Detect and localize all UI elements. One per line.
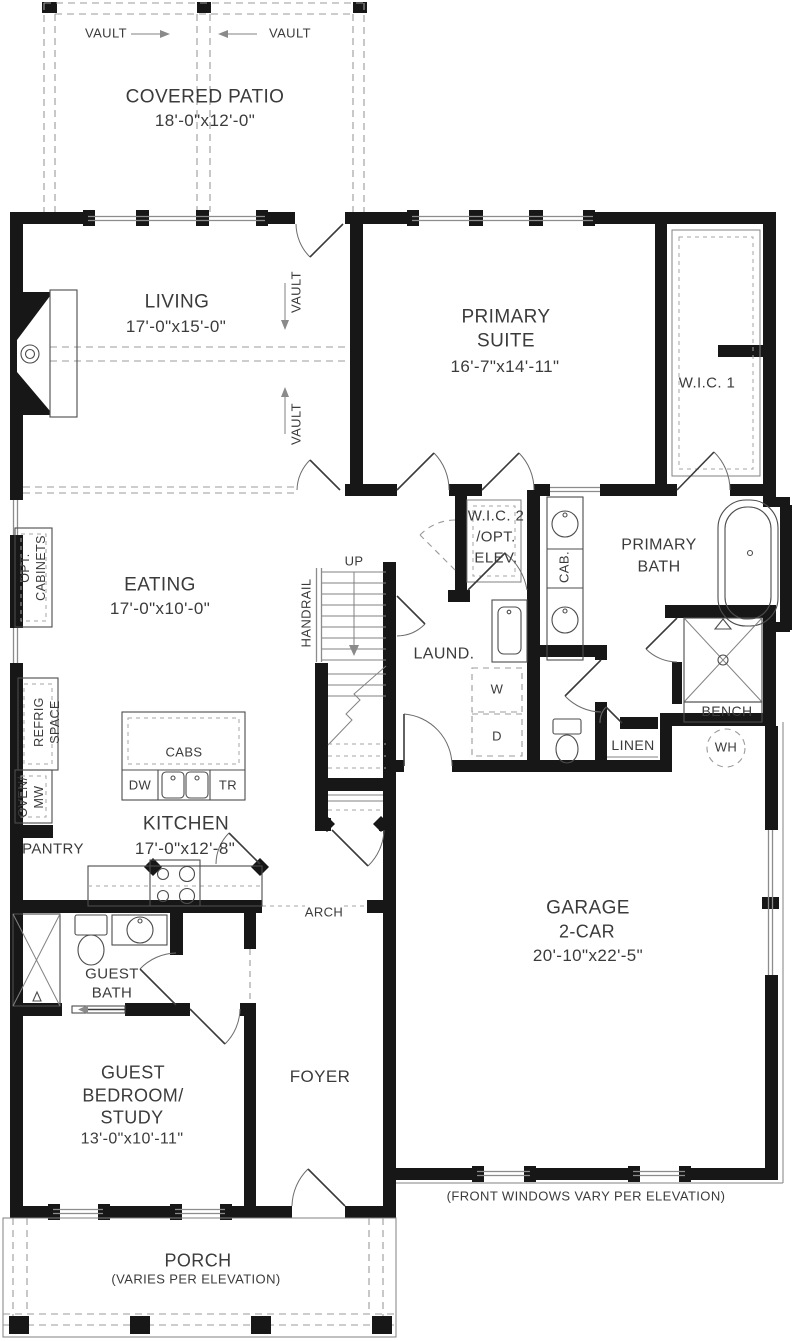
living-title: LIVING <box>145 291 210 316</box>
wic2-line3: ELEV. <box>474 548 517 568</box>
patio-vault-right-label: VAULT <box>269 26 311 43</box>
primary-bath-line2: BATH <box>637 558 680 579</box>
front-windows-note: (FRONT WINDOWS VARY PER ELEVATION) <box>447 1189 726 1206</box>
wic1-label: W.I.C. 1 <box>679 373 736 393</box>
bench-label: BENCH <box>701 702 752 720</box>
floor-plan: VAULT VAULT COVERED PATIO 18'-0"x12'-0" … <box>0 0 800 1341</box>
fireplace <box>10 290 77 417</box>
primary-bath-line1: PRIMARY <box>621 536 696 557</box>
covered-patio-title: COVERED PATIO <box>126 86 285 111</box>
oven-line1: OVEN/ <box>15 777 31 818</box>
washer-label: W <box>491 682 504 699</box>
porch-note: (VARIES PER ELEVATION) <box>111 1272 280 1289</box>
doors <box>140 224 730 1206</box>
guest-bedroom-line2: BEDROOM/ <box>82 1084 183 1107</box>
arch-label: ARCH <box>305 905 343 922</box>
guest-bath-line1: GUEST <box>85 964 139 984</box>
water-heater-label: WH <box>715 740 737 757</box>
tr-label: TR <box>219 778 237 795</box>
foyer-label: FOYER <box>290 1066 351 1088</box>
guest-bedroom-line3: STUDY <box>100 1106 163 1129</box>
guest-bedroom-dims: 13'-0"x10'-11" <box>81 1130 184 1151</box>
eating-title: EATING <box>124 574 196 599</box>
opt-cabinets-line2: CABINETS <box>33 535 49 601</box>
cab-label: CAB. <box>557 551 574 583</box>
guest-bath-line2: BATH <box>92 983 133 1003</box>
refrig-line1: REFRIG <box>31 697 47 747</box>
dw-label: DW <box>129 778 151 795</box>
primary-suite-line2: SUITE <box>477 330 535 355</box>
dryer-label: D <box>492 729 502 746</box>
linen-label: LINEN <box>611 736 654 754</box>
guest-bedroom-line1: GUEST <box>101 1061 165 1084</box>
wic2-line2: /OPT. <box>476 527 516 547</box>
laundry-label: LAUND. <box>413 645 474 666</box>
porch-title: PORCH <box>164 1249 231 1272</box>
kitchen-range-counter <box>88 860 262 906</box>
oven-mw-label: OVEN/ MW <box>15 777 48 818</box>
stairs-up-label: UP <box>345 554 364 571</box>
covered-patio-dims: 18'-0"x12'-0" <box>155 110 255 132</box>
kitchen-title: KITCHEN <box>143 813 229 838</box>
kitchen-dims: 17'-0"x12'-8" <box>135 838 235 860</box>
refrig-space-label: REFRIG SPACE <box>31 697 64 747</box>
pantry-label: PANTRY <box>22 839 84 859</box>
primary-suite-line1: PRIMARY <box>461 306 550 331</box>
garage-line1: GARAGE <box>546 897 630 922</box>
oven-line2: MW <box>31 777 47 818</box>
primary-suite-dims: 16'-7"x14'-11" <box>451 356 560 378</box>
refrig-line2: SPACE <box>47 697 63 747</box>
cabs-label: CABS <box>165 745 202 762</box>
garage-dims: 20'-10"x22'-5" <box>533 945 643 967</box>
living-vault-lower-label: VAULT <box>289 403 306 445</box>
eating-dims: 17'-0"x10'-0" <box>110 598 210 620</box>
wic2-line1: W.I.C. 2 <box>468 506 525 526</box>
garage-line2: 2-CAR <box>559 920 615 943</box>
patio-vault-left-label: VAULT <box>85 26 127 43</box>
living-vault-upper-label: VAULT <box>289 271 306 313</box>
opt-cabinets-line1: OPT. <box>17 535 33 601</box>
opt-cabinets-label: OPT. CABINETS <box>17 535 50 601</box>
living-dims: 17'-0"x15'-0" <box>126 316 226 338</box>
handrail-label: HANDRAIL <box>299 579 316 648</box>
